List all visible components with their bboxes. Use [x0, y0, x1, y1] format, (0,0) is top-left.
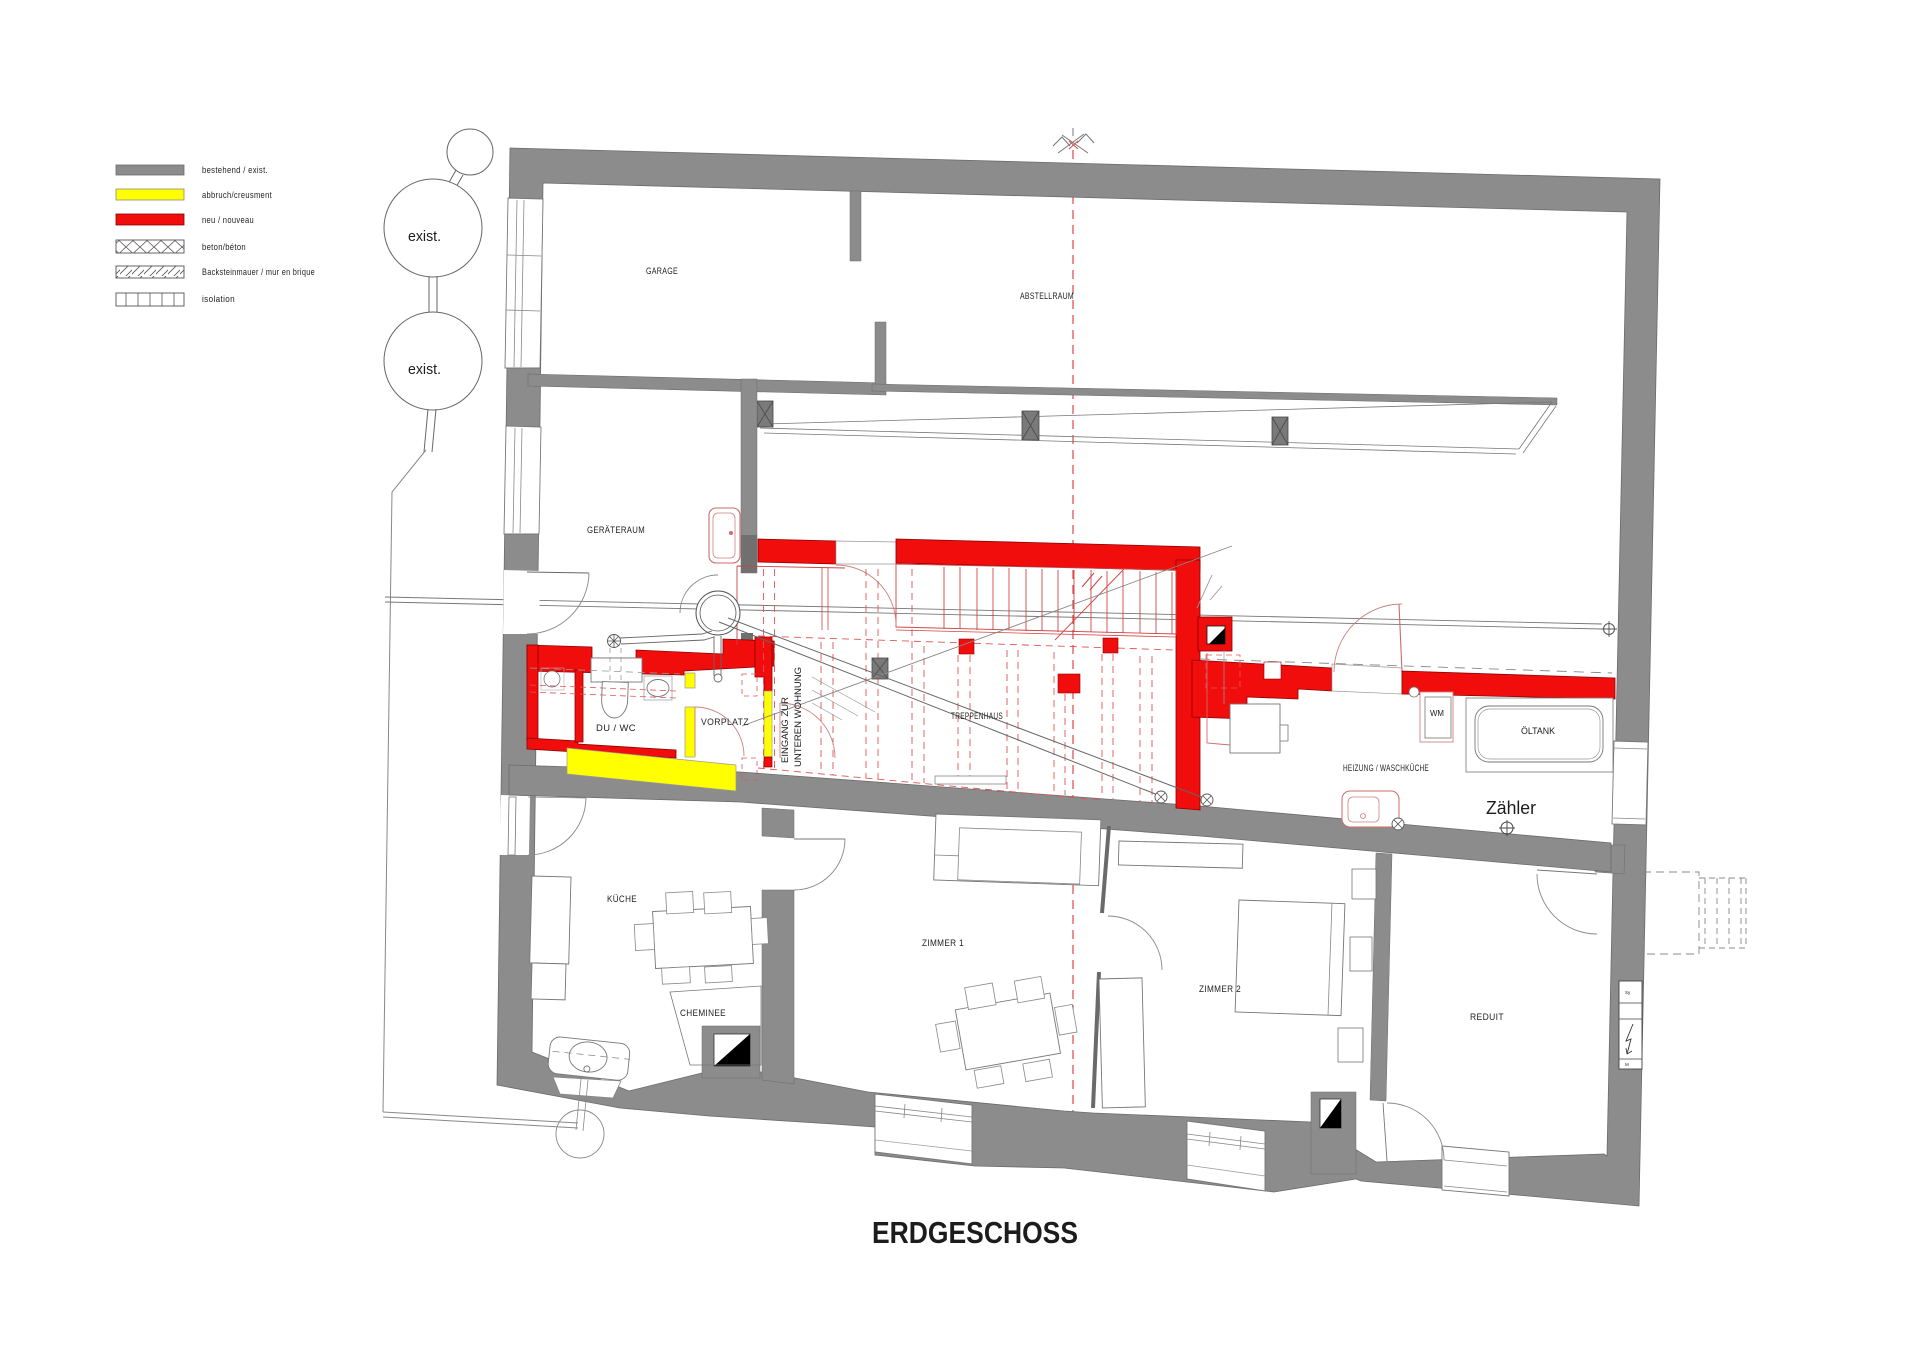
svg-text:Zähler: Zähler — [1486, 797, 1536, 818]
svg-text:DU / WC: DU / WC — [596, 723, 636, 734]
svg-text:GERÄTERAUM: GERÄTERAUM — [587, 525, 645, 536]
svg-text:Backsteinmauer / mur en brique: Backsteinmauer / mur en brique — [202, 267, 315, 278]
svg-text:WM: WM — [1430, 709, 1444, 718]
svg-text:bestehend / exist.: bestehend / exist. — [202, 165, 268, 176]
svg-text:ZIMMER 2: ZIMMER 2 — [1199, 984, 1241, 995]
svg-text:TREPPENHAUS: TREPPENHAUS — [951, 711, 1003, 722]
svg-text:HEIZUNG / WASCHKÜCHE: HEIZUNG / WASCHKÜCHE — [1343, 763, 1429, 774]
svg-text:CHEMINEE: CHEMINEE — [680, 1008, 726, 1019]
svg-text:abbruch/creusment: abbruch/creusment — [202, 190, 272, 201]
svg-text:exist.: exist. — [408, 361, 441, 378]
svg-text:VORPLATZ: VORPLATZ — [701, 717, 749, 728]
svg-text:GARAGE: GARAGE — [646, 266, 678, 277]
svg-text:UNTEREN WOHNUNG: UNTEREN WOHNUNG — [793, 667, 803, 767]
svg-text:exist.: exist. — [408, 228, 441, 245]
svg-text:ÖLTANK: ÖLTANK — [1521, 726, 1555, 736]
svg-text:M: M — [1625, 1062, 1629, 1067]
svg-text:neu / nouveau: neu / nouveau — [202, 215, 254, 226]
svg-text:beton/béton: beton/béton — [202, 242, 246, 253]
svg-text:Sy: Sy — [1625, 990, 1631, 995]
svg-text:ZIMMER 1: ZIMMER 1 — [922, 938, 964, 949]
svg-text:KÜCHE: KÜCHE — [607, 894, 637, 905]
svg-text:isolation: isolation — [202, 294, 235, 305]
svg-text:ERDGESCHOSS: ERDGESCHOSS — [872, 1215, 1078, 1250]
svg-text:EINGANG ZUR: EINGANG ZUR — [780, 696, 790, 763]
svg-text:REDUIT: REDUIT — [1470, 1012, 1504, 1023]
svg-text:ABSTELLRAUM: ABSTELLRAUM — [1020, 291, 1074, 302]
